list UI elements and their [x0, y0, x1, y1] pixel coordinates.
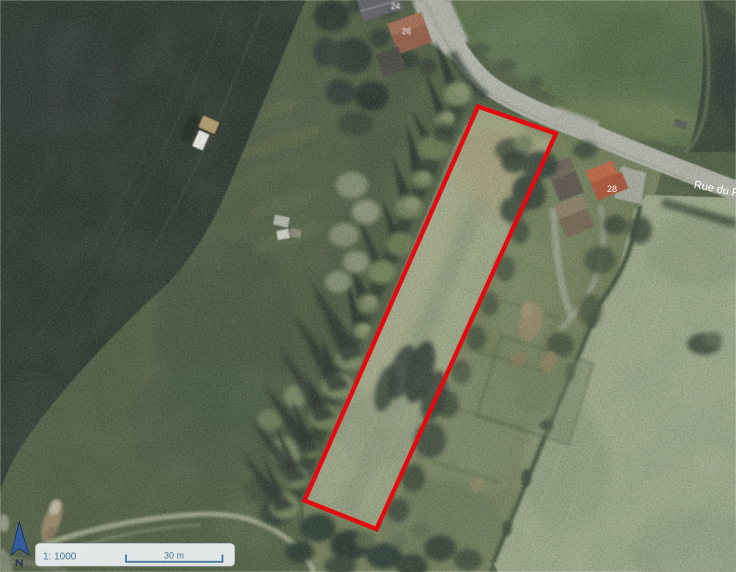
svg-text:30 m: 30 m [164, 551, 184, 561]
svg-text:1: 1000: 1: 1000 [43, 552, 77, 563]
svg-text:28: 28 [607, 184, 617, 194]
